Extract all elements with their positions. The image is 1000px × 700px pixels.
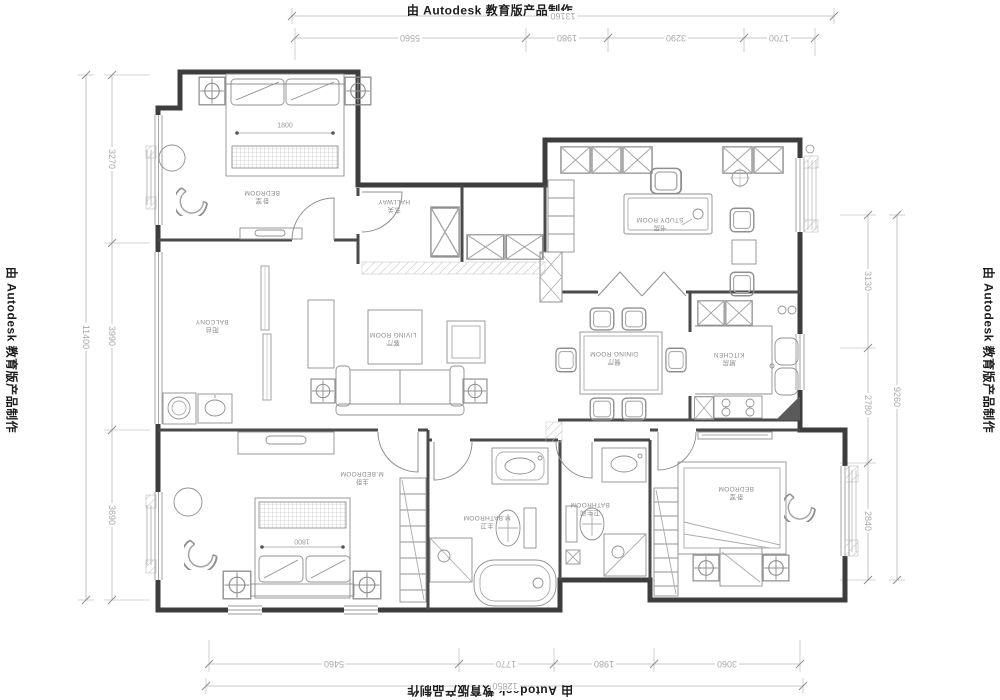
bed-3 — [678, 462, 786, 586]
room-label-kitchen: 厨房KITCHEN — [714, 350, 745, 366]
watermark-right: 由 Autodesk 教育版产品制作 — [981, 267, 998, 433]
wardrobe-icon — [400, 478, 426, 602]
armchair-icon — [174, 188, 207, 219]
dim-bottom-total: 12850 — [490, 681, 519, 691]
dim-bottom-seg-2: 1980 — [592, 659, 616, 669]
interior-walls — [158, 185, 800, 610]
balcony-laundry — [163, 393, 232, 424]
bed1-width-label: 1800 — [275, 123, 295, 130]
dim-right-seg-0: 3130 — [863, 269, 873, 293]
bathtub-icon — [474, 560, 556, 606]
master-bedroom-furniture — [174, 432, 426, 602]
dim-top-total: 13160 — [548, 11, 577, 21]
dim-bottom-seg-3: 3060 — [715, 659, 739, 669]
study-double-door — [598, 272, 686, 296]
dresser-icon — [238, 432, 334, 454]
sofa-icon — [336, 366, 464, 415]
dim-top-seg-1: 1980 — [555, 33, 579, 43]
dim-right-total: 9260 — [892, 385, 902, 409]
dim-left-seg-0: 3270 — [107, 147, 117, 171]
dim-right-seg-2: 2840 — [863, 509, 873, 533]
room-label-bathroom: 卫生间BATHROOM — [570, 500, 609, 516]
plant-stand-icon — [463, 379, 487, 403]
room-label-bedroom-1: 卧室BEDROOM — [244, 188, 280, 204]
room-label-living-room: 客厅LIVING ROOM — [370, 330, 417, 346]
dim-left-total: 11400 — [81, 323, 91, 351]
room-label-balcony: 阳台BALCONY — [195, 317, 228, 333]
room-label-master-bathroom: 主卫M.BATHROOM — [463, 513, 510, 529]
dim-top-seg-2: 3290 — [664, 33, 688, 43]
shower-icon — [430, 538, 472, 582]
tv-cabinet-icon — [308, 300, 334, 368]
kitchen-furniture — [695, 301, 798, 420]
stove-icon — [714, 396, 762, 418]
master-bedroom-door — [378, 432, 418, 472]
vanity-icon — [492, 448, 548, 484]
dim-bottom-seg-1: 1770 — [494, 659, 518, 669]
plant-stand-icon — [311, 379, 335, 403]
room-label-hallway: 玄关HALLWAY — [378, 197, 410, 213]
dimension-lines — [78, 8, 905, 694]
shoe-cabinet-icon — [506, 235, 543, 259]
shoe-cabinet-icon — [467, 235, 504, 259]
closet-icon — [431, 208, 459, 257]
room-label-dining-room: 餐厅DINING ROOM — [590, 349, 638, 365]
room-label-master-bedroom: 主卧M.BEDROOM — [340, 469, 384, 485]
floor-plan-drawing — [0, 0, 1000, 700]
nightstand-lamp-icon — [345, 77, 371, 105]
room-label-study: 书房STUDY ROOM — [637, 215, 684, 231]
nightstand-lamp-icon — [199, 77, 225, 105]
shower-icon — [604, 534, 646, 576]
watermark-left: 由 Autodesk 教育版产品制作 — [4, 267, 21, 433]
kitchen-sink-icon — [770, 338, 798, 395]
bed-2 — [251, 498, 354, 598]
master-bath-door — [434, 442, 472, 480]
wardrobe-icon — [654, 488, 678, 596]
living-room-furniture — [308, 300, 487, 415]
dim-top-seg-3: 1700 — [767, 33, 791, 43]
bedroom2-door — [658, 432, 696, 470]
dim-left-seg-2: 3690 — [107, 503, 117, 527]
floor-plan-canvas: 由 Autodesk 教育版产品制作 由 Autodesk 教育版产品制作 由 … — [0, 0, 1000, 700]
dim-top-seg-0: 5560 — [398, 33, 422, 43]
vanity-icon — [602, 448, 646, 482]
dim-right-seg-1: 2780 — [863, 393, 873, 417]
bedroom2-furniture — [654, 432, 815, 596]
armchair-icon — [782, 494, 815, 525]
curtain-pelmet-icon — [698, 432, 772, 439]
room-label-bedroom-2: 卧室BEDROOM — [718, 484, 754, 500]
dim-bottom-seg-0: 5460 — [322, 659, 346, 669]
tv-icon — [447, 321, 485, 363]
bed2-width-label: 1800 — [292, 538, 312, 545]
bedroom1-door — [292, 198, 334, 240]
dim-left-seg-1: 3990 — [107, 324, 117, 348]
